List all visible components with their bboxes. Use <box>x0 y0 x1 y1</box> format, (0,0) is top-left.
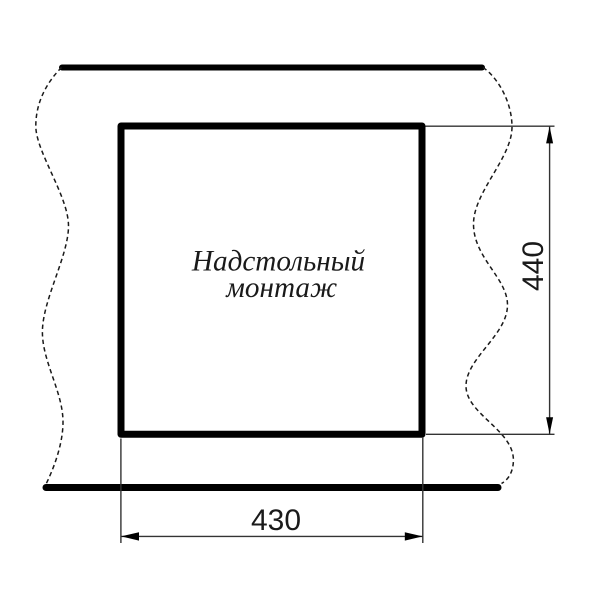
svg-text:монтаж: монтаж <box>225 272 337 304</box>
svg-text:440: 440 <box>517 241 550 291</box>
svg-text:430: 430 <box>251 504 301 537</box>
